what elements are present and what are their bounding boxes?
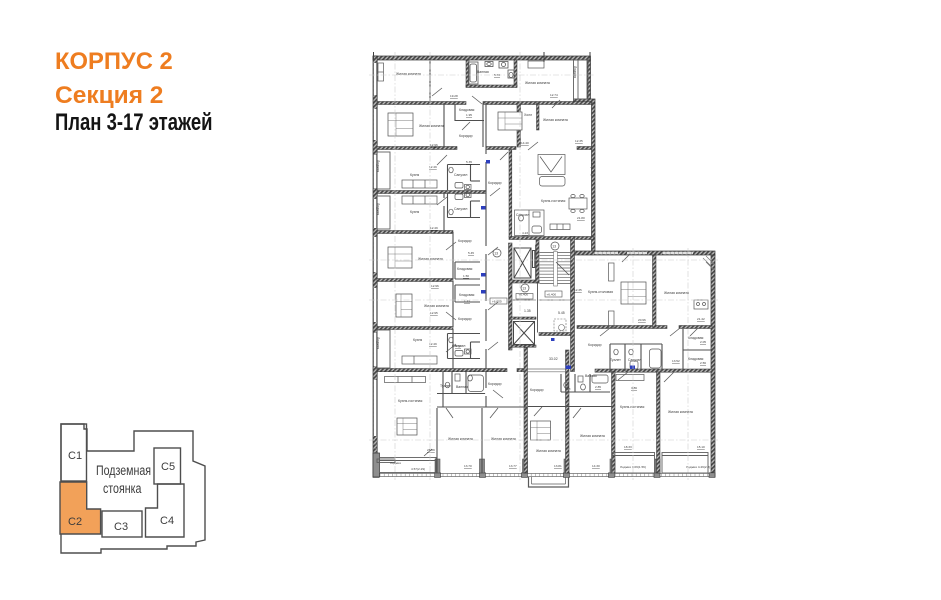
svg-text:Лоджия 4.49(2.2): Лоджия 4.49(2.2) [686,465,710,469]
svg-text:Кладовая: Кладовая [459,108,475,112]
svg-text:13: 13 [522,286,526,290]
svg-text:Жилая комната: Жилая комната [424,304,449,308]
svg-text:С1: С1 [68,450,82,462]
svg-text:2.56: 2.56 [700,361,706,365]
svg-text:Кухня: Кухня [410,210,419,214]
svg-text:Ванная: Ванная [456,385,468,389]
svg-text:Санузел: Санузел [516,213,529,217]
svg-text:13: 13 [552,244,556,248]
svg-text:12.95: 12.95 [430,311,438,315]
svg-text:Кухня-столовая: Кухня-столовая [588,290,613,294]
svg-text:1.21: 1.21 [464,299,470,303]
svg-text:15.10: 15.10 [697,445,705,449]
svg-text:усл: усл [565,387,570,391]
svg-text:Санузел: Санузел [628,358,641,362]
svg-text:С4: С4 [160,515,174,527]
svg-text:Подземная: Подземная [96,463,151,479]
svg-text:5.35: 5.35 [455,344,461,348]
svg-text:Жилая комната: Жилая комната [580,434,605,438]
svg-text:стоянка: стоянка [103,481,141,497]
svg-text:2.05: 2.05 [700,340,706,344]
svg-text:20.96: 20.96 [638,318,646,322]
svg-text:С5: С5 [161,461,175,473]
svg-text:Туалет: Туалет [440,384,451,388]
svg-text:5.45: 5.45 [558,311,565,315]
svg-text:13.77: 13.77 [509,464,517,468]
svg-text:Кухня-гостиная: Кухня-гостиная [620,405,644,409]
svg-text:13.52: 13.52 [672,359,680,363]
svg-text:26.89: 26.89 [427,448,435,452]
svg-text:Коридор: Коридор [488,382,502,386]
svg-text:1.35: 1.35 [524,309,531,313]
svg-text:Жилая комната: Жилая комната [418,257,443,261]
svg-text:Холл: Холл [524,113,532,117]
svg-text:Коридор: Коридор [458,317,472,321]
svg-text:Коридор: Коридор [458,239,472,243]
svg-text:13.70: 13.70 [464,464,472,468]
svg-text:Лоджия: Лоджия [390,461,401,465]
svg-text:Коридор: Коридор [488,181,502,185]
svg-text:Жилая комната: Жилая комната [664,291,689,295]
svg-text:Санузел: Санузел [454,173,467,177]
svg-text:С3: С3 [114,521,128,533]
svg-text:Жилая комната: Жилая комната [668,410,693,414]
svg-text:Кухня: Кухня [413,338,422,342]
svg-text:21.80: 21.80 [577,216,585,220]
svg-text:Лоджия: Лоджия [376,203,380,215]
svg-text:Ванная: Ванная [585,374,597,378]
svg-text:Жилая комната: Жилая комната [536,449,561,453]
svg-text:Санузел: Санузел [454,207,467,211]
svg-text:С2: С2 [68,516,82,528]
svg-text:21.42: 21.42 [697,317,705,321]
svg-text:12.49: 12.49 [430,226,438,230]
svg-text:Коридор: Коридор [459,134,473,138]
svg-text:Жилая комната: Жилая комната [448,437,473,441]
svg-text:Коридор: Коридор [588,343,602,347]
svg-text:1.50: 1.50 [463,274,469,278]
svg-text:5.35: 5.35 [466,160,472,164]
svg-text:Лоджия: Лоджия [573,66,577,78]
svg-text:Кухня-гостиная: Кухня-гостиная [541,199,565,203]
svg-text:1.95: 1.95 [466,113,472,117]
svg-text:2.90(1.45): 2.90(1.45) [590,160,594,176]
svg-text:Коридор: Коридор [530,388,544,392]
svg-text:Жилая комната: Жилая комната [543,118,568,122]
svg-text:Жилая комната: Жилая комната [525,81,550,85]
svg-text:33.02: 33.02 [549,357,558,361]
svg-text:Кладовая: Кладовая [459,293,475,297]
svg-text:Ванная: Ванная [477,70,489,74]
svg-text:12.35: 12.35 [575,139,583,143]
svg-text:Лоджия: Лоджия [376,160,380,172]
svg-text:12.74: 12.74 [550,93,558,97]
svg-text:12.96: 12.96 [430,143,438,147]
svg-text:12.35: 12.35 [574,288,582,292]
svg-text:Лоджия: Лоджия [376,337,380,349]
svg-text:Кухня: Кухня [410,173,419,177]
svg-text:13.81: 13.81 [554,464,562,468]
svg-text:18.33: 18.33 [624,445,632,449]
svg-text:4.23: 4.23 [522,231,528,235]
svg-text:5.45: 5.45 [468,251,474,255]
svg-text:Кухня-гостиная: Кухня-гостиная [398,399,422,403]
svg-text:4.57(2.29): 4.57(2.29) [411,467,425,471]
svg-text:12.96: 12.96 [431,284,439,288]
svg-text:3.86: 3.86 [631,386,637,390]
svg-text:2.85: 2.85 [595,385,601,389]
svg-text:Кладовая: Кладовая [457,267,473,271]
svg-text:Туалет: Туалет [610,358,621,362]
svg-text:14.30: 14.30 [592,464,600,468]
svg-text:Жилая комната: Жилая комната [491,437,516,441]
svg-text:+6,400: +6,400 [547,293,557,297]
svg-text:Жилая комната: Жилая комната [396,72,421,76]
svg-text:19.28: 19.28 [450,94,458,98]
svg-text:13: 13 [494,251,498,255]
svg-text:Жилая комната: Жилая комната [419,124,444,128]
svg-text:14.40: 14.40 [521,141,529,145]
